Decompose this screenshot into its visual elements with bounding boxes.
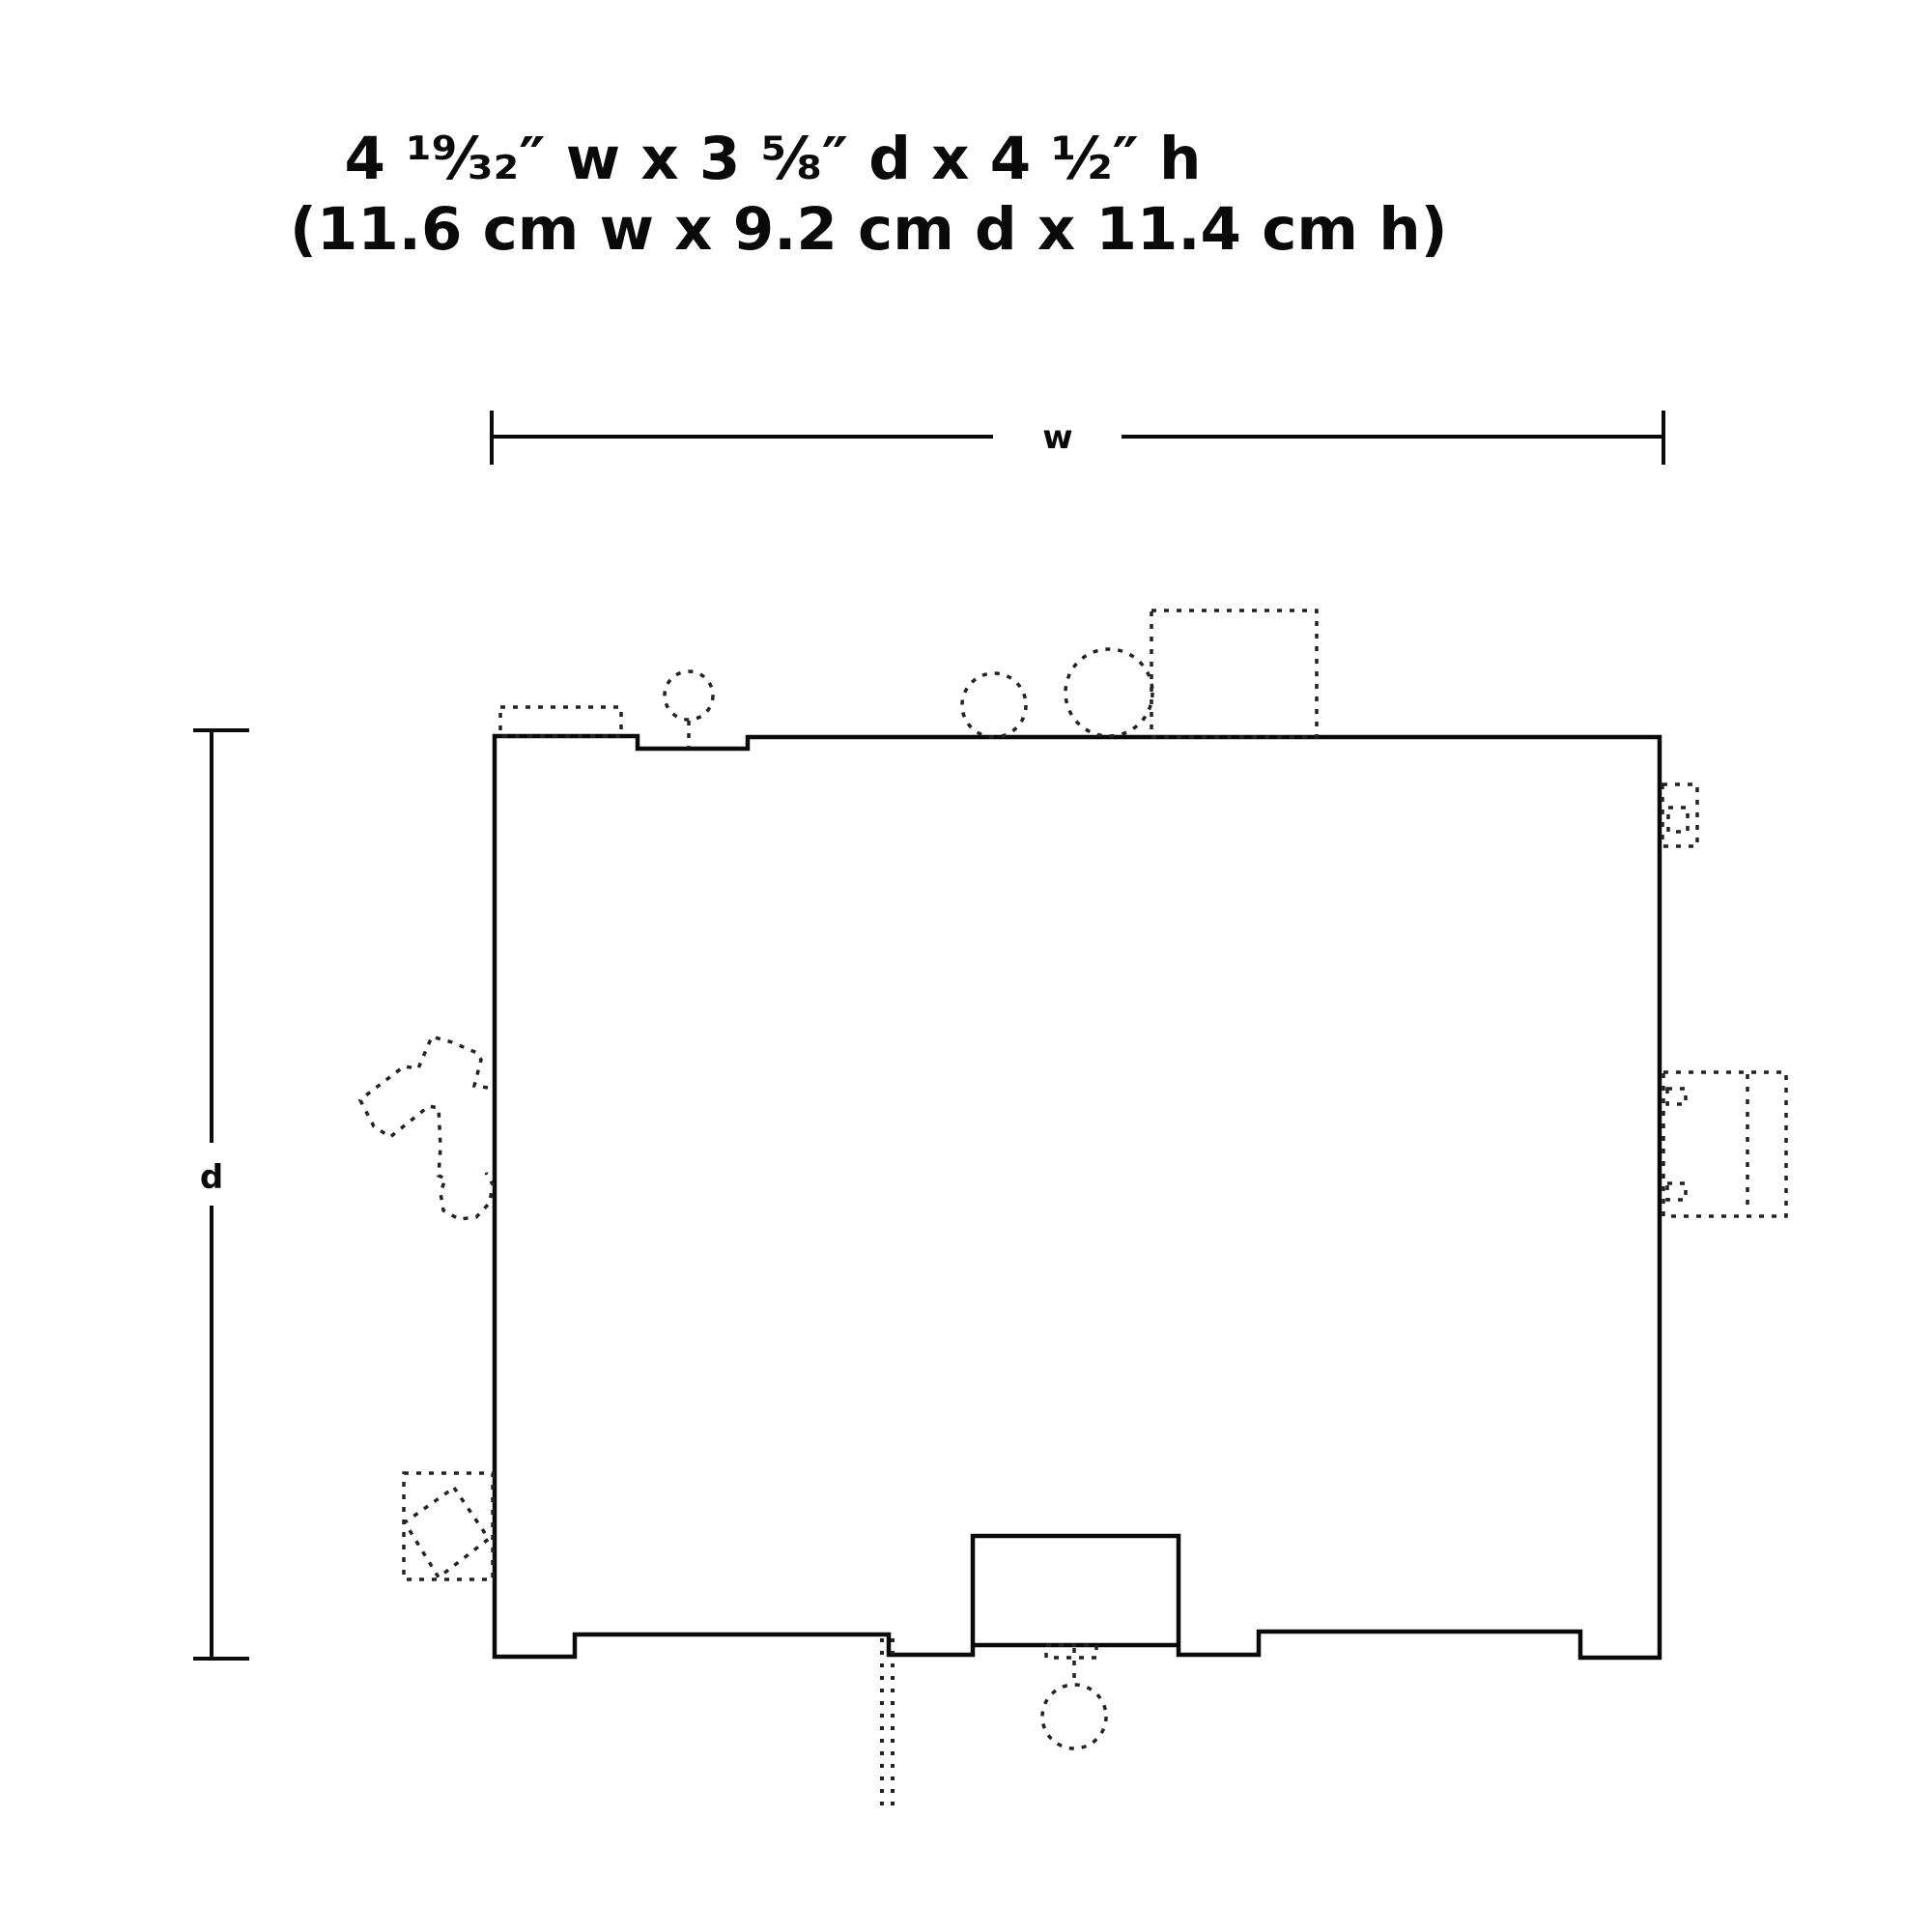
left-planter-diamond [405,1488,489,1577]
building-outline [495,736,1660,1658]
top-small-barrel-outline [962,673,1026,737]
porch-bush-outline [1042,1685,1106,1748]
right-utility-box-inner [1668,808,1688,832]
width-label: w [1042,418,1072,457]
depth-label: d [200,1158,223,1197]
width-dimension-line: w [492,411,1663,465]
right-side-porch-bottom-bracket [1667,1183,1686,1200]
left-bush-outline [360,1037,493,1219]
plan-drawing: w d [0,0,1932,1932]
right-side-porch-outline [1663,1072,1786,1216]
depth-dimension-line: d [193,730,249,1659]
top-notch-lamp-outline [665,671,713,720]
top-large-barrel-outline [1065,649,1152,736]
footprint-diagram: 4 ¹⁹⁄₃₂″ w x 3 ⅝″ d x 4 ½″ h (11.6 cm w … [0,0,1932,1932]
right-side-porch-top-bracket [1667,1089,1686,1104]
left-planter-outline [404,1473,493,1579]
top-right-shed-outline [1151,611,1317,737]
top-left-step-outline [500,707,621,736]
